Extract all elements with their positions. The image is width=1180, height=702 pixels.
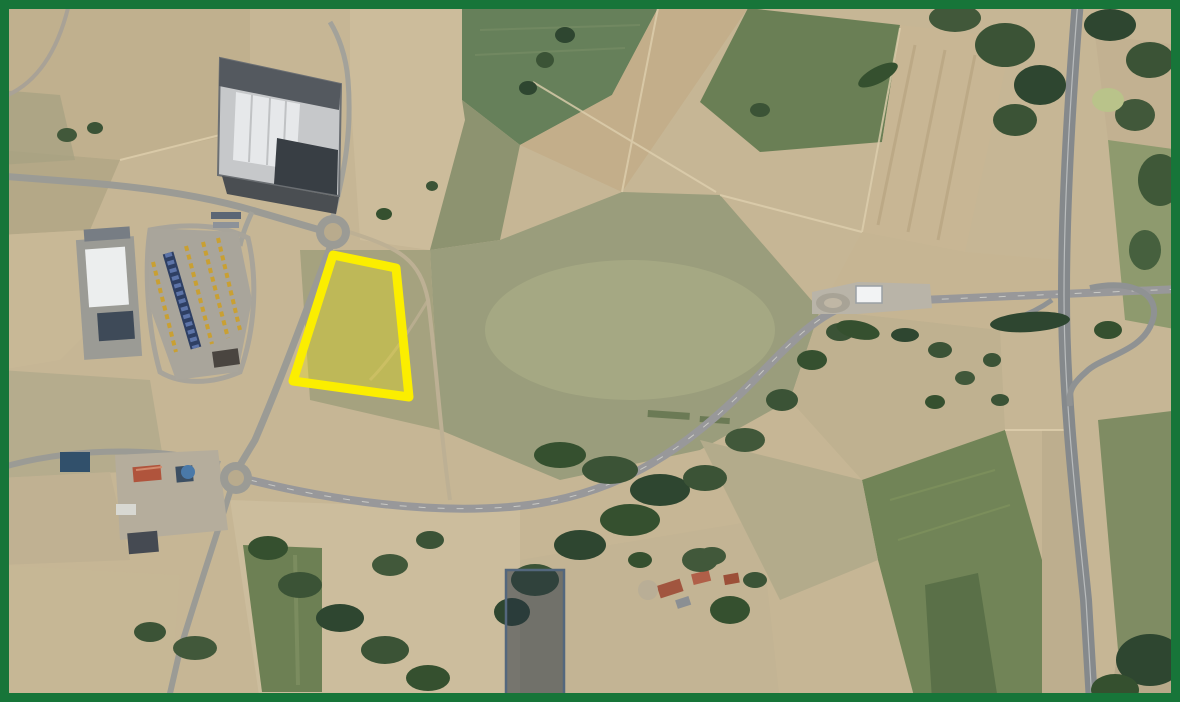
selection-rectangle[interactable] [506, 570, 564, 697]
roundabout-south [220, 462, 252, 494]
warehouse-building [218, 58, 341, 214]
aerial-map [0, 0, 1180, 702]
pool [181, 465, 195, 479]
white-building [76, 226, 142, 359]
toll-plaza-canopy [856, 286, 882, 303]
roundabout-north [316, 215, 350, 249]
map-viewport[interactable] [0, 0, 1180, 702]
